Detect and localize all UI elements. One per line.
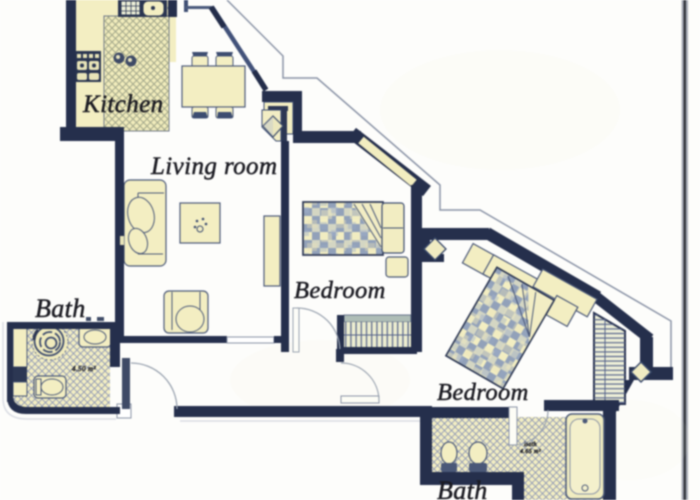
svg-text:4.65 m²: 4.65 m² xyxy=(520,448,541,455)
svg-text:Bedroom: Bedroom xyxy=(294,277,386,304)
svg-text:Living room: Living room xyxy=(150,153,277,180)
svg-text:Bath: Bath xyxy=(437,476,488,500)
svg-text:4.50 m²: 4.50 m² xyxy=(72,365,96,373)
svg-text:Kitchen: Kitchen xyxy=(82,91,164,118)
svg-text:Bedroom: Bedroom xyxy=(437,379,529,406)
svg-text:Bath: Bath xyxy=(35,294,86,323)
